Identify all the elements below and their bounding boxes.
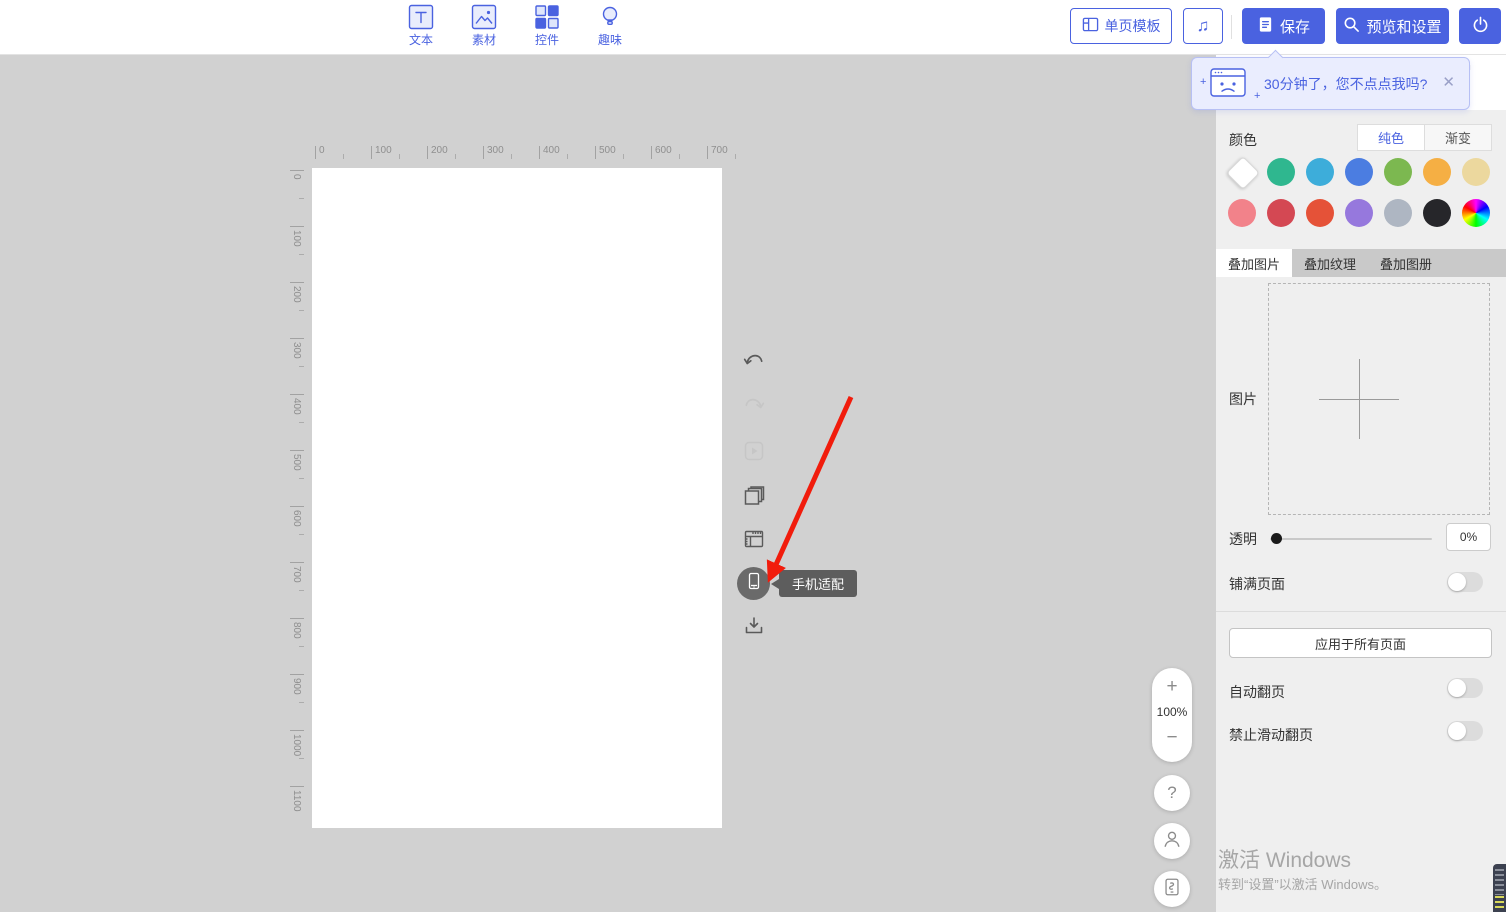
color-swatch[interactable] [1345,199,1373,227]
ruler-minor-tick [299,310,304,311]
color-swatch[interactable] [1423,199,1451,227]
ruler-tick [290,226,304,227]
ruler-label: 0 [291,174,302,180]
template-layout-icon [1082,16,1099,36]
tool-label: 趣味 [598,31,622,48]
transparency-slider-track[interactable] [1270,538,1432,540]
apply-all-pages-button[interactable]: 应用于所有页面 [1229,628,1492,658]
widgets-tool-icon [534,4,560,30]
ruler-label: 0 [319,145,325,156]
ruler-label: 500 [291,454,302,471]
ruler-label: 700 [291,566,302,583]
save-button-label: 保存 [1280,16,1310,37]
color-swatch[interactable] [1228,199,1256,227]
windows-watermark-title: 激活 Windows [1218,844,1351,874]
ruler-tick [483,146,484,159]
ruler-tick [290,506,304,507]
image-upload-box[interactable] [1268,283,1490,515]
auto-flip-toggle[interactable] [1447,678,1483,698]
save-doc-icon [1257,16,1274,37]
ruler-minor-tick [299,198,304,199]
mobile-adapt-tooltip: 手机适配 [779,570,857,597]
corner-widget-stripes [1495,896,1504,909]
ruler-minor-tick [567,154,568,159]
ruler-minor-tick [399,154,400,159]
ruler-tick [315,146,316,159]
color-swatch[interactable] [1267,199,1295,227]
ruler-minor-tick [299,646,304,647]
preview-button-label: 预览和设置 [1366,16,1441,37]
top-toolbar: 文本 素材 [0,0,1506,55]
ruler-label: 500 [599,145,616,156]
tool-text[interactable]: 文本 [406,4,436,48]
ruler-tick [290,170,304,171]
ruler-minor-tick [511,154,512,159]
ruler-minor-tick [455,154,456,159]
redo-button[interactable] [742,394,766,423]
tool-label: 文本 [409,31,433,48]
ruler-tick [290,394,304,395]
save-button[interactable]: 保存 [1242,8,1325,44]
download-button[interactable] [742,614,766,643]
transparency-label: 透明 [1229,529,1257,549]
ruler-minor-tick [735,154,736,159]
device-s-icon [1161,876,1183,903]
ruler-tick [290,674,304,675]
ruler-minor-tick [299,702,304,703]
sparkle-plus-icon: + [1200,76,1206,88]
no-swipe-toggle[interactable] [1447,721,1483,741]
solid-color-tab[interactable]: 纯色 [1358,125,1424,150]
ruler-minor-tick [299,534,304,535]
tool-widget[interactable]: 控件 [532,4,562,48]
ruler-label: 600 [655,145,672,156]
color-swatch[interactable] [1306,199,1334,227]
tab-overlay-image[interactable]: 叠加图片 [1216,249,1292,277]
ruler-label: 900 [291,678,302,695]
pages-button[interactable] [742,483,766,512]
gradient-color-tab[interactable]: 渐变 [1424,125,1491,150]
ruler-tick [290,282,304,283]
ruler-minor-tick [299,254,304,255]
question-icon: ? [1167,783,1176,803]
fill-page-toggle[interactable] [1447,572,1483,592]
ruler-label: 800 [291,622,302,639]
editor-app: 文本 素材 [0,0,1506,912]
undo-button[interactable] [742,350,766,379]
ruler-minor-tick [679,154,680,159]
image-section-label: 图片 [1229,389,1257,409]
page-canvas[interactable] [312,168,722,828]
tooltip-label: 手机适配 [792,574,844,593]
swatch-rainbow[interactable] [1462,199,1490,227]
zoom-out-button[interactable]: − [1152,728,1192,747]
ruler-tick [371,146,372,159]
zoom-control: + 100% − [1152,668,1192,762]
toolbar-divider [1231,15,1232,39]
music-icon: ♫ [1197,16,1210,36]
overlay-tabstrip: 叠加图片 叠加纹理 叠加图册 [1216,249,1506,277]
ruler-label: 400 [291,398,302,415]
panel-divider [1216,611,1506,612]
color-section-label: 颜色 [1229,130,1257,150]
ruler-label: 200 [291,286,302,303]
music-button[interactable]: ♫ [1183,8,1223,44]
sad-window-icon [1208,67,1250,106]
person-icon [1161,828,1183,855]
zoom-in-button[interactable]: + [1152,677,1192,696]
ruler-minor-tick [299,590,304,591]
color-swatch[interactable] [1345,158,1373,186]
tool-label: 素材 [472,31,496,48]
help-button[interactable]: ? [1154,775,1190,811]
ruler-tick [290,562,304,563]
phone-icon [744,571,764,596]
grid-ruler-button[interactable] [742,527,766,556]
ruler-label: 600 [291,510,302,527]
tool-label: 控件 [535,31,559,48]
ruler-minor-tick [299,758,304,759]
ruler-label: 1000 [291,734,302,756]
tool-material[interactable]: 素材 [469,4,499,48]
ruler-tick [595,146,596,159]
ruler-label: 100 [291,230,302,247]
tool-fun[interactable]: 趣味 [595,4,625,48]
ruler-tick [427,146,428,159]
account-button[interactable] [1154,823,1190,859]
corner-widget-stripes [1495,869,1504,895]
ruler-label: 300 [487,145,504,156]
single-page-template-button[interactable]: 单页模板 [1070,8,1172,44]
image-tool-icon [471,4,497,30]
ruler-tick [707,146,708,159]
auto-flip-label: 自动翻页 [1229,682,1285,702]
transparency-value[interactable]: 0% [1446,523,1491,551]
color-swatches [1228,158,1494,227]
ruler-tick [290,338,304,339]
color-swatch[interactable] [1423,158,1451,186]
plus-icon [1359,359,1360,439]
h-ruler: 0100200300400500600700 [315,144,755,160]
ruler-label: 300 [291,342,302,359]
color-swatch[interactable] [1384,199,1412,227]
ruler-tick [539,146,540,159]
ruler-label: 400 [543,145,560,156]
tooltip-arrow [771,579,779,589]
fill-page-label: 铺满页面 [1229,574,1285,594]
corner-widget [1493,864,1506,912]
tab-overlay-album[interactable]: 叠加图册 [1368,249,1444,277]
ruler-minor-tick [343,154,344,159]
color-swatch[interactable] [1384,158,1412,186]
template-button-label: 单页模板 [1105,16,1161,36]
text-tool-icon [408,4,434,30]
color-mode-segmented: 纯色 渐变 [1357,124,1492,151]
ruler-minor-tick [623,154,624,159]
tab-overlay-texture[interactable]: 叠加纹理 [1292,249,1368,277]
swatch-white-selected[interactable] [1226,156,1260,190]
insert-tools: 文本 素材 [406,4,625,48]
mobile-adapt-button[interactable] [737,567,770,600]
play-button[interactable] [742,439,766,468]
power-icon [1471,15,1490,38]
color-swatch[interactable] [1306,158,1334,186]
ruler-tick [290,786,304,787]
zoom-level: 100% [1152,705,1192,719]
ruler-tick [290,450,304,451]
ruler-tick [290,730,304,731]
idle-notification: + + 30分钟了，您不点点我吗? ✕ [1191,57,1470,110]
preview-settings-button[interactable]: 预览和设置 [1336,8,1449,44]
settings-panel: ≣ 颜色 纯色 渐变 叠加图片 叠加纹理 叠加图册 图片 透明 0% 铺满页面 … [1216,54,1506,912]
notification-text: 30分钟了，您不点点我吗? [1264,74,1427,94]
v-ruler: 010020030040050060070080090010001100 [289,170,307,830]
ruler-label: 700 [711,145,728,156]
ruler-minor-tick [299,366,304,367]
no-swipe-label: 禁止滑动翻页 [1229,725,1313,745]
feedback-device-button[interactable] [1154,871,1190,907]
exit-button[interactable] [1459,8,1501,44]
color-swatch[interactable] [1267,158,1295,186]
bulb-tool-icon [597,4,623,30]
ruler-tick [651,146,652,159]
search-icon [1343,16,1360,37]
sparkle-plus-icon: + [1254,90,1260,102]
ruler-label: 100 [375,145,392,156]
ruler-tick [290,618,304,619]
color-swatch[interactable] [1462,158,1490,186]
close-icon[interactable]: ✕ [1442,73,1455,91]
ruler-label: 200 [431,145,448,156]
ruler-minor-tick [299,478,304,479]
transparency-slider-thumb[interactable] [1271,533,1282,544]
ruler-label: 1100 [291,790,302,812]
ruler-minor-tick [299,422,304,423]
windows-watermark-subtitle: 转到“设置”以激活 Windows。 [1218,874,1387,893]
